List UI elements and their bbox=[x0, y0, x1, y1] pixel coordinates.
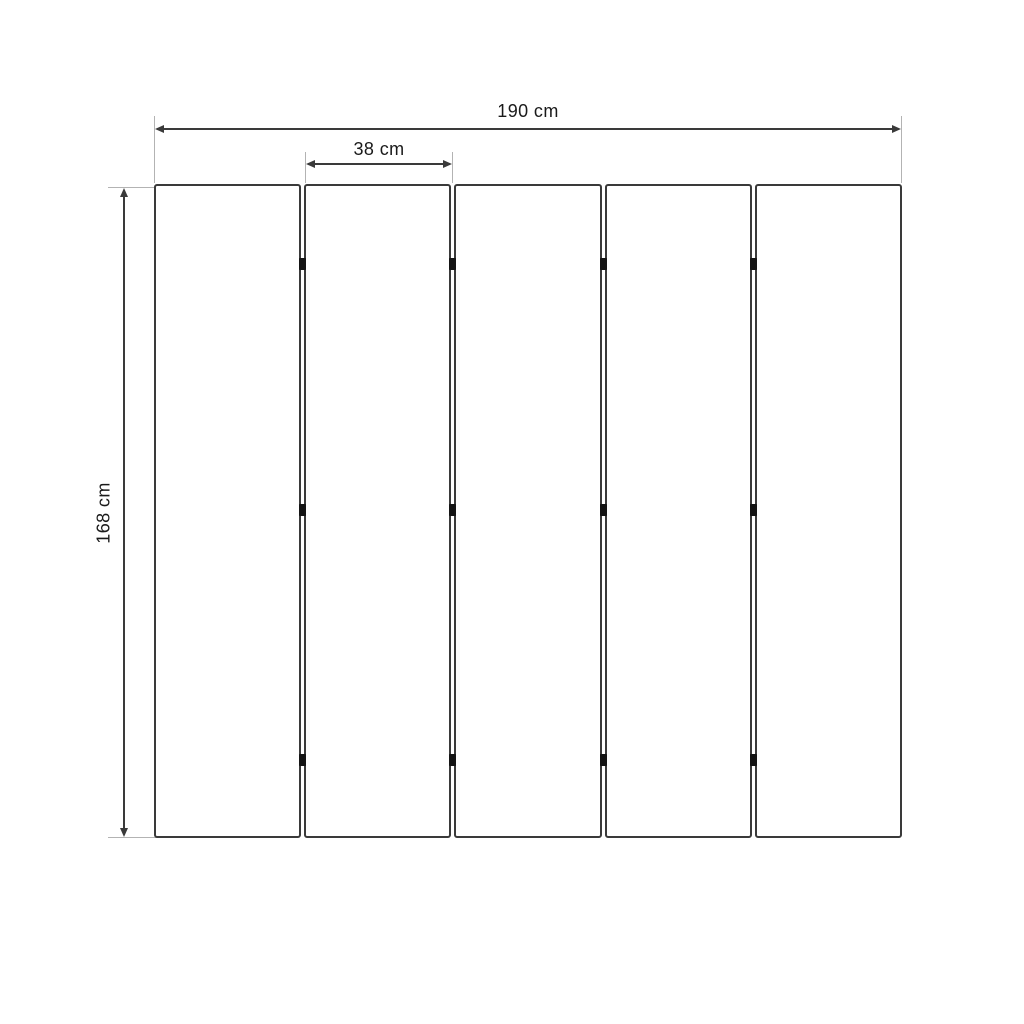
panel bbox=[605, 184, 752, 838]
arrow-right-icon bbox=[443, 160, 452, 168]
height-extension-top bbox=[108, 187, 157, 188]
arrow-right-icon bbox=[892, 125, 901, 133]
hinge bbox=[299, 258, 306, 270]
total-width-extension-right bbox=[901, 116, 902, 183]
panel bbox=[454, 184, 601, 838]
arrow-left-icon bbox=[155, 125, 164, 133]
panel-width-label: 38 cm bbox=[353, 139, 404, 160]
hinge bbox=[750, 504, 757, 516]
height-label: 168 cm bbox=[94, 482, 115, 543]
hinge bbox=[750, 754, 757, 766]
hinge bbox=[449, 754, 456, 766]
total-width-label: 190 cm bbox=[497, 101, 558, 122]
height-extension-bottom bbox=[108, 837, 157, 838]
panel bbox=[304, 184, 451, 838]
hinge bbox=[299, 754, 306, 766]
hinge bbox=[600, 258, 607, 270]
hinge bbox=[299, 504, 306, 516]
panels bbox=[154, 184, 902, 838]
height-dimension-line bbox=[123, 192, 125, 833]
hinge bbox=[449, 258, 456, 270]
arrow-down-icon bbox=[120, 828, 128, 837]
hinge bbox=[600, 504, 607, 516]
panel-width-dimension-line bbox=[308, 163, 450, 165]
arrow-left-icon bbox=[306, 160, 315, 168]
panel bbox=[154, 184, 301, 838]
hinge bbox=[750, 258, 757, 270]
hinge bbox=[449, 504, 456, 516]
hinge bbox=[600, 754, 607, 766]
panel bbox=[755, 184, 902, 838]
total-width-dimension-line bbox=[157, 128, 899, 130]
folding-screen-diagram: 190 cm 38 cm 168 cm bbox=[0, 0, 1024, 1024]
arrow-up-icon bbox=[120, 188, 128, 197]
panel-width-extension-right bbox=[452, 152, 453, 183]
